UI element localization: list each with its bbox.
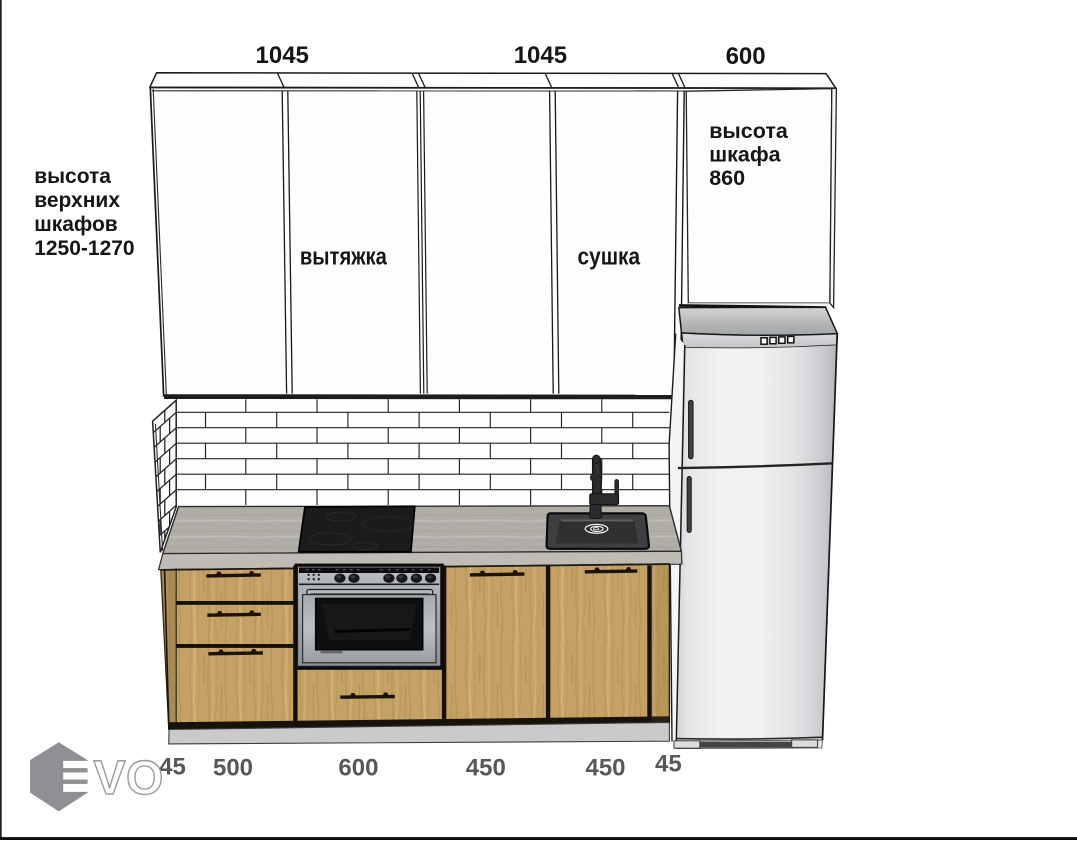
svg-text:1250-1270: 1250-1270: [34, 237, 134, 260]
svg-text:600: 600: [338, 755, 378, 782]
svg-text:VO: VO: [94, 752, 164, 805]
svg-text:верхних: верхних: [34, 189, 120, 212]
svg-text:450: 450: [585, 755, 625, 782]
svg-text:45: 45: [655, 750, 682, 777]
svg-text:1045: 1045: [514, 42, 567, 69]
svg-text:шкафов: шкафов: [34, 213, 118, 236]
svg-text:860: 860: [709, 166, 745, 190]
svg-text:600: 600: [726, 43, 766, 70]
svg-text:высота: высота: [34, 165, 111, 188]
svg-text:сушка: сушка: [578, 243, 641, 270]
svg-text:1045: 1045: [256, 42, 309, 69]
svg-text:шкафа: шкафа: [709, 142, 781, 166]
svg-text:высота: высота: [709, 119, 789, 143]
svg-text:500: 500: [213, 755, 253, 782]
svg-text:вытяжка: вытяжка: [300, 243, 387, 270]
svg-text:450: 450: [466, 755, 506, 782]
